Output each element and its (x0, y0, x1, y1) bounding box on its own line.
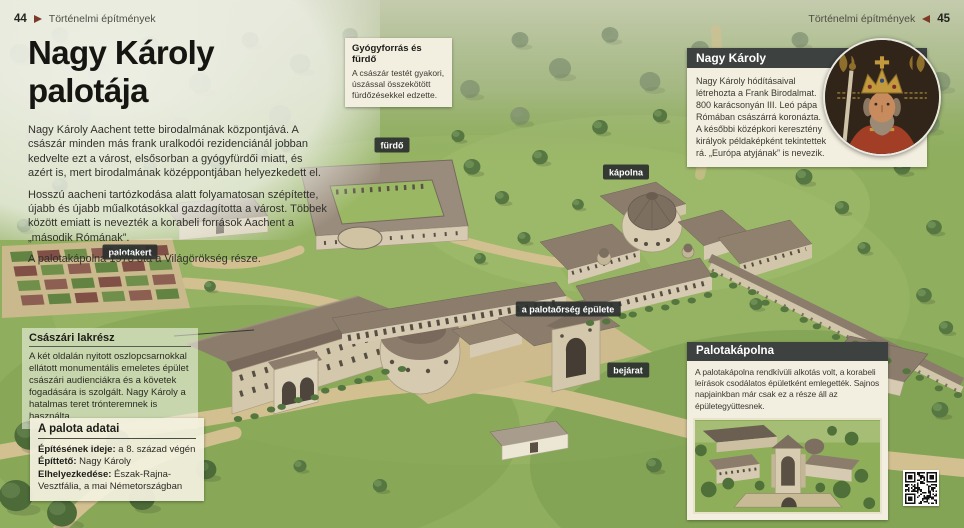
triangle-left-icon (922, 15, 930, 23)
data-value: a 8. század végén (118, 444, 195, 455)
data-value: Nagy Károly (79, 456, 131, 467)
palace-chapel-title: Palotakápolna (687, 342, 888, 361)
map-label-furdo: fürdő (375, 138, 410, 153)
imperial-quarters-body: A két oldalán nyitott oszlopcsarnokkal e… (29, 351, 191, 423)
palace-chapel-body: A palotakápolna rendkívüli alkotás volt,… (687, 361, 888, 418)
palace-chapel-image (693, 418, 882, 514)
article: Nagy Károly palotája Nagy Károly Aachent… (28, 34, 330, 274)
palace-data-row: Építtető: Nagy Károly (38, 456, 196, 468)
charlemagne-portrait (823, 38, 941, 156)
data-label: Építésének ideje: (38, 444, 116, 455)
section-title-left: Történelmi építmények (49, 13, 156, 25)
palace-data-row: Építésének ideje: a 8. század végén (38, 444, 196, 456)
palace-data-box: A palota adatai Építésének ideje: a 8. s… (30, 418, 204, 501)
bath-infobox-body: A császár testét gyakori, úszással össze… (352, 68, 445, 100)
article-paragraph: Nagy Károly Aachent tette birodalmának k… (28, 123, 330, 181)
triangle-right-icon (34, 15, 42, 23)
page-header-right: Történelmi építmények 45 (808, 13, 950, 25)
page-number-right: 45 (937, 13, 950, 25)
map-label-palotaorseg: a palotaőrség épülete (516, 302, 621, 317)
page-number-left: 44 (14, 13, 27, 25)
page-header-left: 44 Történelmi építmények (14, 13, 156, 25)
imperial-quarters-title: Császári lakrész (29, 332, 191, 347)
map-label-bejarat: bejárat (607, 363, 649, 378)
page-title: Nagy Károly palotája (28, 34, 330, 110)
data-label: Építtető: (38, 456, 77, 467)
palace-chapel-infobox: Palotakápolna A palotakápolna rendkívüli… (687, 342, 888, 520)
imperial-quarters-caption: Császári lakrész A két oldalán nyitott o… (22, 328, 198, 429)
article-paragraph: A palotakápolna 1978 óta a Világörökség … (28, 252, 330, 266)
qr-code (903, 470, 939, 506)
book-spread: 44 Történelmi építmények Történelmi épít… (0, 0, 964, 528)
bath-infobox-title: Gyógyforrás és fürdő (352, 43, 445, 65)
map-label-kapolna: kápolna (603, 165, 649, 180)
section-title-right: Történelmi építmények (808, 13, 915, 25)
palace-data-row: Elhelyezkedése: Észak-Rajna-Vesztfália, … (38, 469, 196, 494)
bath-infobox: Gyógyforrás és fürdő A császár testét gy… (345, 38, 452, 107)
article-paragraph: Hosszú aacheni tartózkodása alatt folyam… (28, 188, 330, 246)
charlemagne-portrait-illustration (825, 40, 939, 154)
palace-data-title: A palota adatai (38, 423, 196, 439)
data-label: Elhelyezkedése: (38, 469, 111, 480)
